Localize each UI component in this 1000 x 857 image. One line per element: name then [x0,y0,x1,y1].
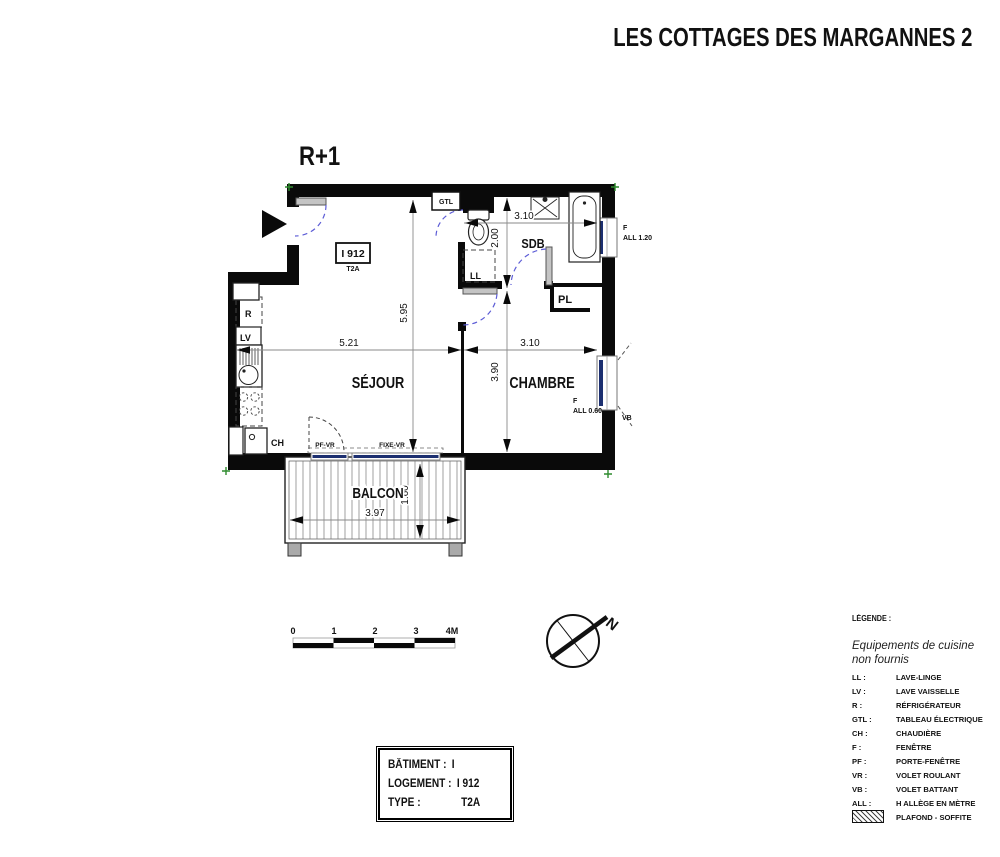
dim-balcon-width: 3.97 [365,508,385,519]
corner-marks [222,183,619,478]
legend-abbr: PF : [852,754,896,768]
info-value: I [452,756,455,775]
dim-sdb-width: 3.10 [514,211,534,222]
unit-tag: I 912 T2A [336,243,370,273]
fridge-label: R [245,309,252,319]
lv-label: LV [240,333,251,343]
scale-bar: 0 1 2 3 4M [290,626,458,648]
washing-machine-slot: LL [463,250,495,282]
entry-closet [233,283,259,300]
chambre-door [463,288,497,325]
balcon-label: BALCON [352,485,403,502]
entrance-arrow-icon [262,210,287,238]
bathtub-icon [569,192,600,262]
unit-id: I 912 [341,248,365,260]
ch-label: CH [271,438,284,448]
info-label: TYPE : [388,794,421,813]
scale-tick-4: 4M [446,626,459,636]
sdb-door [511,247,552,285]
balcony-door-label: PF-VR [315,442,335,449]
boiler-icon: CH [229,427,284,455]
legend-row: ALL :H ALLÈGE EN MÈTRE [852,796,983,810]
ll-label: LL [470,271,481,281]
legend-abbr: CH : [852,726,896,740]
balcony-glazing [308,448,443,460]
legend-label: RÉFRIGÉRATEUR [896,698,983,712]
balcony-foot-right [449,543,462,556]
washbasin-icon [531,197,559,219]
bedroom-shutter-label: VB [622,415,632,422]
balcony-foot-left [288,543,301,556]
sejour-label: SÉJOUR [352,374,405,393]
toilet-icon [468,210,489,245]
info-value: T2A [461,794,480,813]
gtl-label: GTL [439,199,454,206]
legend-label: LAVE VAISSELLE [896,684,983,698]
scale-tick-0: 0 [290,626,295,636]
legend-label: FENÊTRE [896,740,983,754]
bath-window-type: F [623,225,628,232]
legend-row: LL :LAVE-LINGE [852,670,983,684]
legend-heading: LÉGENDE : [852,614,983,623]
legend-abbr: GTL : [852,712,896,726]
info-row-logement: LOGEMENT : I 912 [388,775,492,794]
chambre-label: CHAMBRE [509,375,575,393]
placard-label: PL [558,294,572,306]
bath-window-allege: ALL 1.20 [623,235,652,242]
legend-row: LV :LAVE VAISSELLE [852,684,983,698]
legend-abbr: VB : [852,782,896,796]
legend-label: LAVE-LINGE [896,670,983,684]
sdb-label: SDB [521,236,545,251]
info-label: BÂTIMENT : [388,756,446,775]
dim-chambre-height: 3.90 [490,362,501,382]
info-value: I 912 [457,775,480,794]
compass-icon: N [547,614,621,667]
shutter-swing-top [618,343,631,360]
scale-tick-2: 2 [372,626,377,636]
unit-info-box: BÂTIMENT : I LOGEMENT : I 912 TYPE : T2A [378,748,512,820]
page-title: LES COTTAGES DES MARGANNES 2 [613,22,972,53]
legend-abbr: R : [852,698,896,712]
legend: LÉGENDE : Equipements de cuisine non fou… [852,614,998,825]
legend-row: CH :CHAUDIÈRE [852,726,983,740]
legend-label: VOLET BATTANT [896,782,983,796]
legend-row: VR :VOLET ROULANT [852,768,983,782]
legend-table: LL :LAVE-LINGE LV :LAVE VAISSELLE R :RÉF… [852,670,983,825]
legend-abbr: F : [852,740,896,754]
legend-note-line2: non fournis [852,654,909,666]
floorplan-page: LES COTTAGES DES MARGANNES 2 [0,0,1000,857]
bedroom-window-allege: ALL 0.60 [573,408,602,415]
floorplan-drawing: GTL LL R LV [0,0,1000,857]
legend-abbr: LL : [852,670,896,684]
legend-label: H ALLÈGE EN MÈTRE [896,796,983,810]
legend-row: F :FENÊTRE [852,740,983,754]
exterior-walls [228,184,615,470]
legend-label: TABLEAU ÉLECTRIQUE [896,712,983,726]
gtl-box: GTL [432,192,460,210]
bedroom-window-type: F [573,398,578,405]
legend-note-line1: Equipements de cuisine [852,640,974,652]
balcony [285,457,465,556]
legend-abbr: ALL : [852,796,896,810]
info-label: LOGEMENT : [388,775,452,794]
dishwasher-slot: LV [236,327,261,345]
scale-tick-3: 3 [413,626,418,636]
legend-row: VB :VOLET BATTANT [852,782,983,796]
legend-row: R :RÉFRIGÉRATEUR [852,698,983,712]
info-row-type: TYPE : T2A [388,794,492,813]
unit-type: T2A [346,266,359,273]
floor-label: R+1 [299,142,340,172]
wc-door [436,210,463,237]
scale-tick-1: 1 [331,626,336,636]
legend-hatch-label: PLAFOND - SOFFITE [896,810,983,825]
legend-row: GTL :TABLEAU ÉLECTRIQUE [852,712,983,726]
hatch-swatch-icon [852,810,884,823]
legend-row-hatch: PLAFOND - SOFFITE [852,810,983,825]
legend-label: VOLET ROULANT [896,768,983,782]
balcony-fixed-label: FIXE-VR [379,442,405,449]
legend-label: PORTE-FENÊTRE [896,754,983,768]
info-row-batiment: BÂTIMENT : I [388,756,492,775]
dim-sejour-height: 5.95 [399,303,410,323]
legend-row: PF :PORTE-FENÊTRE [852,754,983,768]
dim-sdb-height: 2.00 [490,228,501,248]
dim-sejour-width: 5.21 [339,338,359,349]
legend-abbr: LV : [852,684,896,698]
legend-abbr: VR : [852,768,896,782]
legend-label: CHAUDIÈRE [896,726,983,740]
dim-chambre-width: 3.10 [520,338,540,349]
